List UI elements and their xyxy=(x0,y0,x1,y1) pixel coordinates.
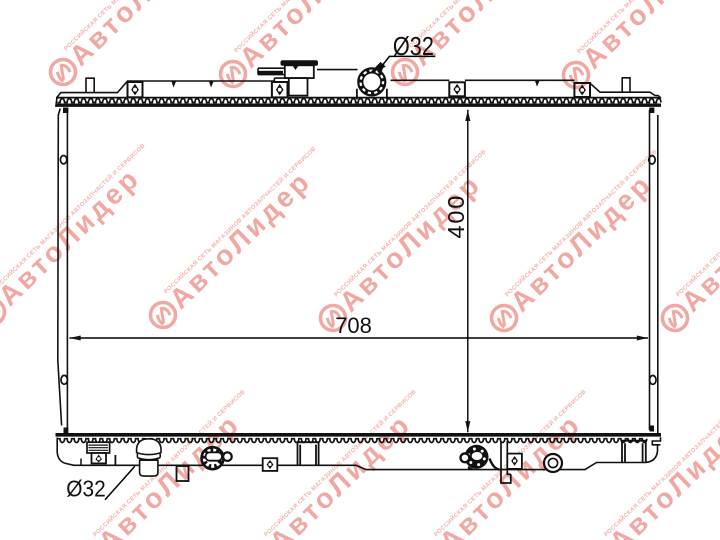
svg-text:Ø32: Ø32 xyxy=(66,476,106,502)
svg-text:708: 708 xyxy=(335,313,372,338)
svg-text:400: 400 xyxy=(443,194,469,239)
svg-text:Ø32: Ø32 xyxy=(393,31,434,61)
